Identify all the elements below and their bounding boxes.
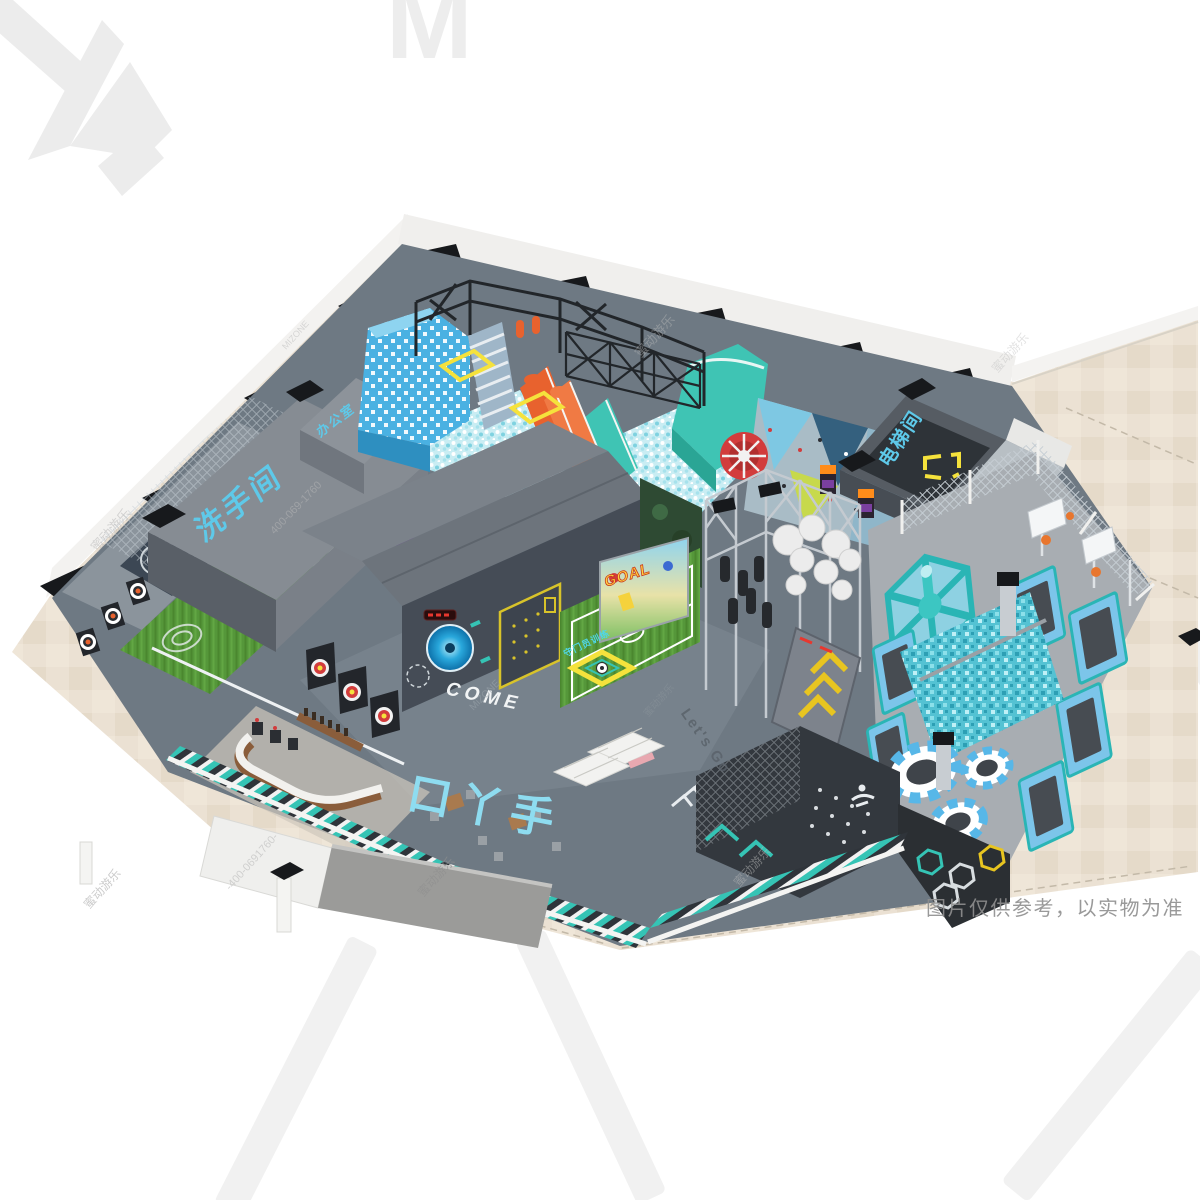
scene: GOAL 守门员训练 bbox=[0, 0, 1200, 1200]
column-shaft bbox=[277, 878, 291, 932]
column-shaft bbox=[80, 842, 92, 884]
padded-post bbox=[936, 740, 951, 790]
basketball bbox=[1091, 567, 1101, 577]
disclaimer-text: 图片仅供参考，以实物为准 bbox=[926, 892, 1184, 921]
padded-post-cap bbox=[933, 732, 954, 745]
padded-post-cap bbox=[997, 572, 1019, 586]
render-page: M bbox=[0, 0, 1200, 1200]
trapeze-bar bbox=[532, 316, 540, 334]
padded-post bbox=[1000, 580, 1016, 636]
basketball bbox=[1066, 512, 1074, 520]
trapeze-bar bbox=[516, 320, 524, 338]
basketball bbox=[1041, 535, 1051, 545]
